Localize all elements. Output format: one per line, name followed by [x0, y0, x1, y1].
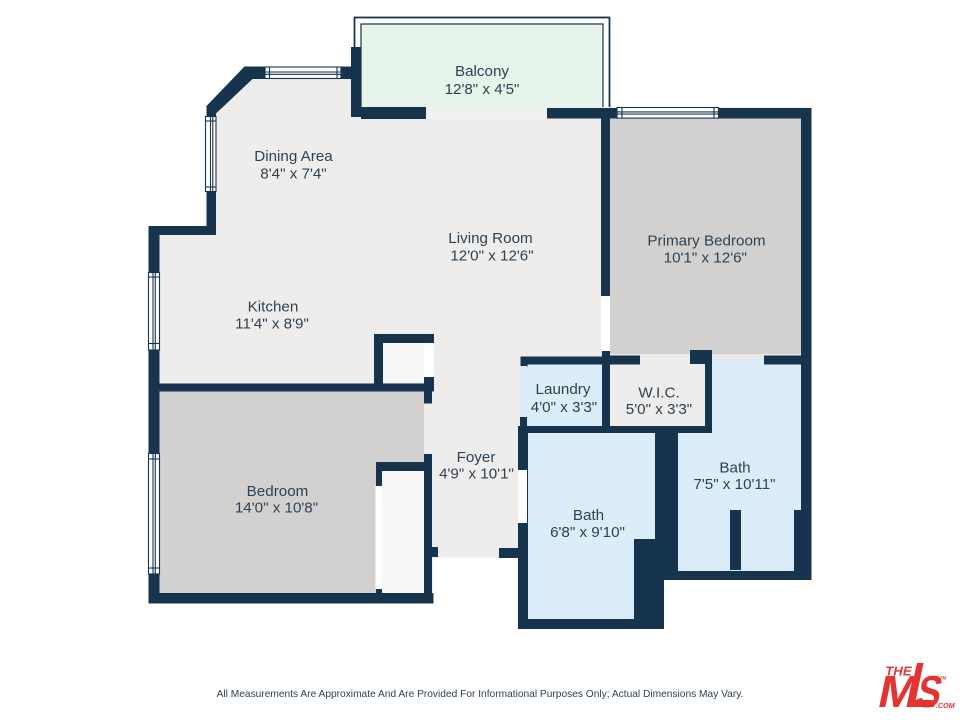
svg-text:6'8" x 9'10": 6'8" x 9'10" [550, 524, 625, 541]
svg-text:Kitchen: Kitchen [248, 299, 299, 316]
svg-text:4'9" x 10'1": 4'9" x 10'1" [439, 465, 514, 482]
svg-text:4'0" x 3'3": 4'0" x 3'3" [531, 399, 597, 416]
svg-text:8'4" x 7'4": 8'4" x 7'4" [260, 166, 326, 183]
svg-text:Bath: Bath [719, 460, 750, 477]
svg-text:10'1" x 12'6": 10'1" x 12'6" [664, 250, 747, 267]
svg-text:Foyer: Foyer [457, 449, 496, 466]
svg-text:11'4" x 8'9": 11'4" x 8'9" [235, 315, 309, 332]
svg-text:All Measurements Are Approxima: All Measurements Are Approximate And Are… [217, 689, 744, 700]
svg-text:Balcony: Balcony [455, 63, 509, 80]
svg-text:W.I.C.: W.I.C. [638, 385, 679, 402]
svg-text:Bath: Bath [573, 507, 604, 524]
svg-text:Primary Bedroom: Primary Bedroom [647, 233, 765, 250]
svg-text:Dining Area: Dining Area [254, 148, 333, 165]
svg-text:TM: TM [939, 676, 947, 681]
svg-text:Laundry: Laundry [536, 381, 591, 398]
svg-text:.COM: .COM [935, 701, 956, 710]
svg-text:12'8" x 4'5": 12'8" x 4'5" [445, 81, 520, 98]
svg-text:14'0" x 10'8": 14'0" x 10'8" [235, 499, 318, 516]
svg-text:7'5" x 10'11": 7'5" x 10'11" [693, 476, 775, 493]
svg-text:Bedroom: Bedroom [247, 483, 309, 500]
svg-text:12'0" x 12'6": 12'0" x 12'6" [450, 248, 533, 265]
svg-text:Living Room: Living Room [448, 230, 532, 247]
svg-text:5'0" x 3'3": 5'0" x 3'3" [626, 401, 692, 418]
